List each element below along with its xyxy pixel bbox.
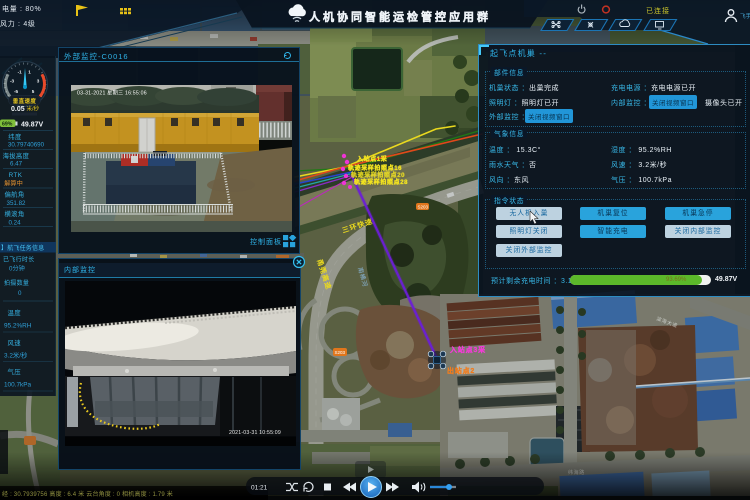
- svg-text:S203: S203: [418, 205, 429, 210]
- svg-text:入站点1采: 入站点1采: [356, 155, 387, 163]
- svg-text:入站点3采: 入站点3采: [449, 345, 486, 354]
- svg-text:飞手: 飞手: [740, 12, 750, 20]
- svg-text:米/秒: 米/秒: [27, 105, 40, 113]
- svg-text:风速: 风速: [8, 339, 22, 347]
- svg-text:轨迹采样拍照点28: 轨迹采样拍照点28: [354, 178, 408, 186]
- svg-text:已飞行时长: 已飞行时长: [3, 256, 35, 264]
- svg-text:轨迹采样拍照点16: 轨迹采样拍照点16: [348, 164, 402, 172]
- svg-text:49.87V: 49.87V: [21, 122, 44, 129]
- svg-text:0.24: 0.24: [8, 220, 21, 227]
- svg-text:气压: 气压: [8, 367, 22, 376]
- svg-text:03-31-2021 星期三 16:55:06: 03-31-2021 星期三 16:55:06: [77, 90, 147, 97]
- svg-text:69%: 69%: [2, 122, 13, 128]
- svg-text:-3: -3: [10, 79, 15, 84]
- svg-text:3.2米/秒: 3.2米/秒: [4, 351, 28, 360]
- svg-text:】航飞任务信息: 】航飞任务信息: [1, 244, 44, 252]
- svg-text:-1: -1: [18, 70, 23, 75]
- svg-text:6.47: 6.47: [10, 160, 23, 167]
- svg-text:横滚角: 横滚角: [4, 209, 24, 218]
- svg-text:01:21: 01:21: [251, 485, 268, 492]
- svg-text:-5: -5: [14, 89, 19, 94]
- svg-text:2021-03-31 10:55:09: 2021-03-31 10:55:09: [229, 430, 281, 436]
- svg-text:垂直速度: 垂直速度: [13, 97, 37, 105]
- svg-text:95.2%RH: 95.2%RH: [4, 323, 32, 330]
- svg-text:3: 3: [37, 79, 40, 84]
- svg-text:出站点2: 出站点2: [447, 366, 475, 375]
- svg-text:0.05: 0.05: [11, 106, 25, 113]
- svg-text:30.79740690: 30.79740690: [8, 141, 45, 148]
- svg-text:轨迹采样拍照点20: 轨迹采样拍照点20: [351, 171, 405, 179]
- svg-text:100.7kPa: 100.7kPa: [4, 382, 31, 389]
- svg-text:拍摄数量: 拍摄数量: [4, 279, 29, 287]
- svg-text:偏航角: 偏航角: [4, 190, 24, 199]
- svg-text:0: 0: [18, 290, 22, 297]
- svg-text:351.82: 351.82: [7, 200, 26, 207]
- svg-text:人机协同智能运检管控应用群: 人机协同智能运检管控应用群: [309, 10, 491, 24]
- svg-text:S203: S203: [335, 350, 346, 355]
- svg-text:已连接: 已连接: [646, 6, 670, 15]
- svg-text:0分钟: 0分钟: [9, 265, 25, 273]
- svg-text:温度: 温度: [8, 308, 22, 317]
- svg-text:海拔高度: 海拔高度: [3, 151, 30, 160]
- svg-text:5: 5: [32, 89, 35, 94]
- svg-text:解算中: 解算中: [4, 179, 23, 187]
- svg-text:RTK: RTK: [9, 172, 23, 179]
- svg-text:纬度: 纬度: [8, 132, 22, 141]
- svg-text:1: 1: [28, 70, 31, 75]
